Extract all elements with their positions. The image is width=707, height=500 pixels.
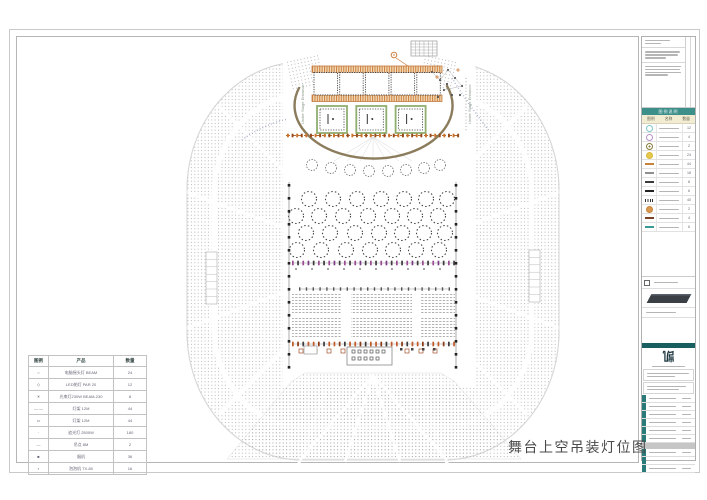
legend-symbol: ○ — [29, 367, 49, 379]
title-info-row — [642, 457, 695, 465]
legend-symbol: ■ — [29, 451, 49, 463]
strip-qty: 6 — [683, 189, 695, 193]
legend-symbol: ▪ — [29, 463, 49, 475]
project-info-block — [643, 369, 694, 380]
strip-qty: 24 — [683, 153, 695, 157]
strip-symbol-bar-dotted — [645, 199, 653, 202]
legend-row: ·追光灯 2500W180 — [29, 427, 147, 439]
legend-product: 灯架 12M — [49, 403, 114, 415]
legend-product: 追光灯 2500W — [49, 427, 114, 439]
strip-note-row — [642, 308, 695, 318]
strip-symbol-bar — [645, 217, 654, 220]
legend-symbol: ✳ — [29, 391, 49, 403]
strip-symbol-bar — [645, 172, 654, 175]
strip-legend-row: 44 — [642, 160, 695, 169]
legend-row: —吊点 8M2 — [29, 439, 147, 451]
strip-legend-row: 2 — [642, 205, 695, 214]
legend-product: 烟机 — [49, 451, 114, 463]
title-info-row — [642, 395, 695, 403]
legend-qty: 36 — [114, 451, 147, 463]
strip-qty: 44 — [683, 162, 695, 166]
legend-row: ○电脑摇头灯 BEAM24 — [29, 367, 147, 379]
legend-symbol: ▭ — [29, 415, 49, 427]
strip-qty: 4 — [683, 135, 695, 139]
general-notes — [642, 37, 695, 108]
legend-row: ◇LED帕灯 PAR 2012 — [29, 379, 147, 391]
legend-row: ✳光束灯230W BEAM-2308 — [29, 391, 147, 403]
legend-qty: 12 — [114, 379, 147, 391]
legend-qty: 24 — [114, 367, 147, 379]
legend-symbol: ◇ — [29, 379, 49, 391]
strip-qty: 40 — [683, 198, 695, 202]
strip-legend-row: 6 — [642, 223, 695, 232]
strip-symbol-bar — [645, 226, 654, 229]
strip-qty: 8 — [683, 180, 695, 184]
strip-symbol-bar — [645, 163, 654, 166]
title-info-row — [642, 403, 695, 411]
legend-symbol: — — — [29, 403, 49, 415]
strip-icon-row — [642, 277, 695, 289]
stage-label-right: Under Stage Entrance — [467, 84, 472, 124]
legend-product: 吊点 8M — [49, 439, 114, 451]
screen-icon — [644, 280, 650, 286]
strip-symbol-circle — [646, 206, 653, 213]
legend-product: 电脑摇头灯 BEAM — [49, 367, 114, 379]
title-info-row — [642, 411, 695, 419]
legend-qty: 16 — [114, 463, 147, 475]
strip-legend-row: 12 — [642, 124, 695, 133]
strip-symbol-circle — [646, 134, 653, 141]
legend-product: 泡泡机 TX-80 — [49, 463, 114, 475]
company-logo: 凯 — [642, 348, 695, 364]
strip-legend-row: 24 — [642, 151, 695, 160]
strip-qty: 12 — [683, 126, 695, 130]
legend-product: 光束灯230W BEAM-230 — [49, 391, 114, 403]
strip-legend-row: 8 — [642, 178, 695, 187]
client-info-block — [643, 382, 694, 393]
strip-qty: 2 — [683, 207, 695, 211]
legend-product: LED帕灯 PAR 20 — [49, 379, 114, 391]
title-info-row — [642, 465, 695, 473]
strip-symbol-circle — [646, 152, 653, 159]
strip-legend-header: 图例说明 — [642, 108, 695, 115]
strip-symbol-bar — [645, 181, 654, 184]
strip-symbol-circle-dot — [646, 143, 653, 150]
legend-row: ■烟机36 — [29, 451, 147, 463]
strip-legend-row: 18 — [642, 169, 695, 178]
legend-header: 数量 — [114, 356, 147, 367]
legend-table: 图例产品数量 ○电脑摇头灯 BEAM24◇LED帕灯 PAR 2012✳光束灯2… — [28, 355, 147, 475]
top-grid-icon — [411, 41, 437, 56]
title-info-table — [642, 395, 695, 473]
strip-truss-photo-row — [642, 289, 695, 308]
strip-legend-row: 2 — [642, 142, 695, 151]
legend-product: 灯架 12M — [49, 415, 114, 427]
strip-symbol-bar — [645, 190, 654, 193]
title-info-row — [642, 427, 695, 435]
legend-row: ▪泡泡机 TX-8016 — [29, 463, 147, 475]
strip-qty: 18 — [683, 171, 695, 175]
title-info-row — [642, 419, 695, 427]
truss-photo — [646, 294, 691, 303]
legend-row: ▭灯架 12M44 — [29, 415, 147, 427]
legend-qty: 8 — [114, 391, 147, 403]
drawing-title: 舞台上空吊装灯位图 — [508, 437, 636, 457]
title-info-row — [642, 449, 695, 457]
strip-legend-row: 4 — [642, 133, 695, 142]
legend-row: — —灯架 12M44 — [29, 403, 147, 415]
strip-legend-columns: 图例名称数量 — [642, 115, 695, 124]
stage-label-left: Under Stage Entrance — [300, 84, 305, 124]
legend-header: 产品 — [49, 356, 114, 367]
strip-qty: 6 — [683, 225, 695, 229]
legend-qty: 2 — [114, 439, 147, 451]
strip-legend-row: 40 — [642, 196, 695, 205]
legend-header: 图例 — [29, 356, 49, 367]
strip-legend-row: 4 — [642, 214, 695, 223]
legend-symbol: — — [29, 439, 49, 451]
stage-truss-grid — [312, 66, 442, 133]
strip-symbol-circle — [646, 125, 653, 132]
strip-qty: 4 — [683, 216, 695, 220]
strip-qty: 2 — [683, 144, 695, 148]
legend-symbol: · — [29, 427, 49, 439]
strip-legend-row: 6 — [642, 187, 695, 196]
title-block-strip: 图例说明 图例名称数量 12422444188640246 凯 — [641, 36, 696, 461]
title-info-row — [642, 435, 695, 443]
legend-qty: 44 — [114, 403, 147, 415]
legend-qty: 180 — [114, 427, 147, 439]
legend-qty: 44 — [114, 415, 147, 427]
strip-legend-rows: 12422444188640246 — [642, 124, 695, 232]
cad-viewer-page: { "drawing": { "title": "舞台上空吊装灯位图", "st… — [0, 0, 707, 500]
strip-empty-section — [642, 232, 695, 277]
